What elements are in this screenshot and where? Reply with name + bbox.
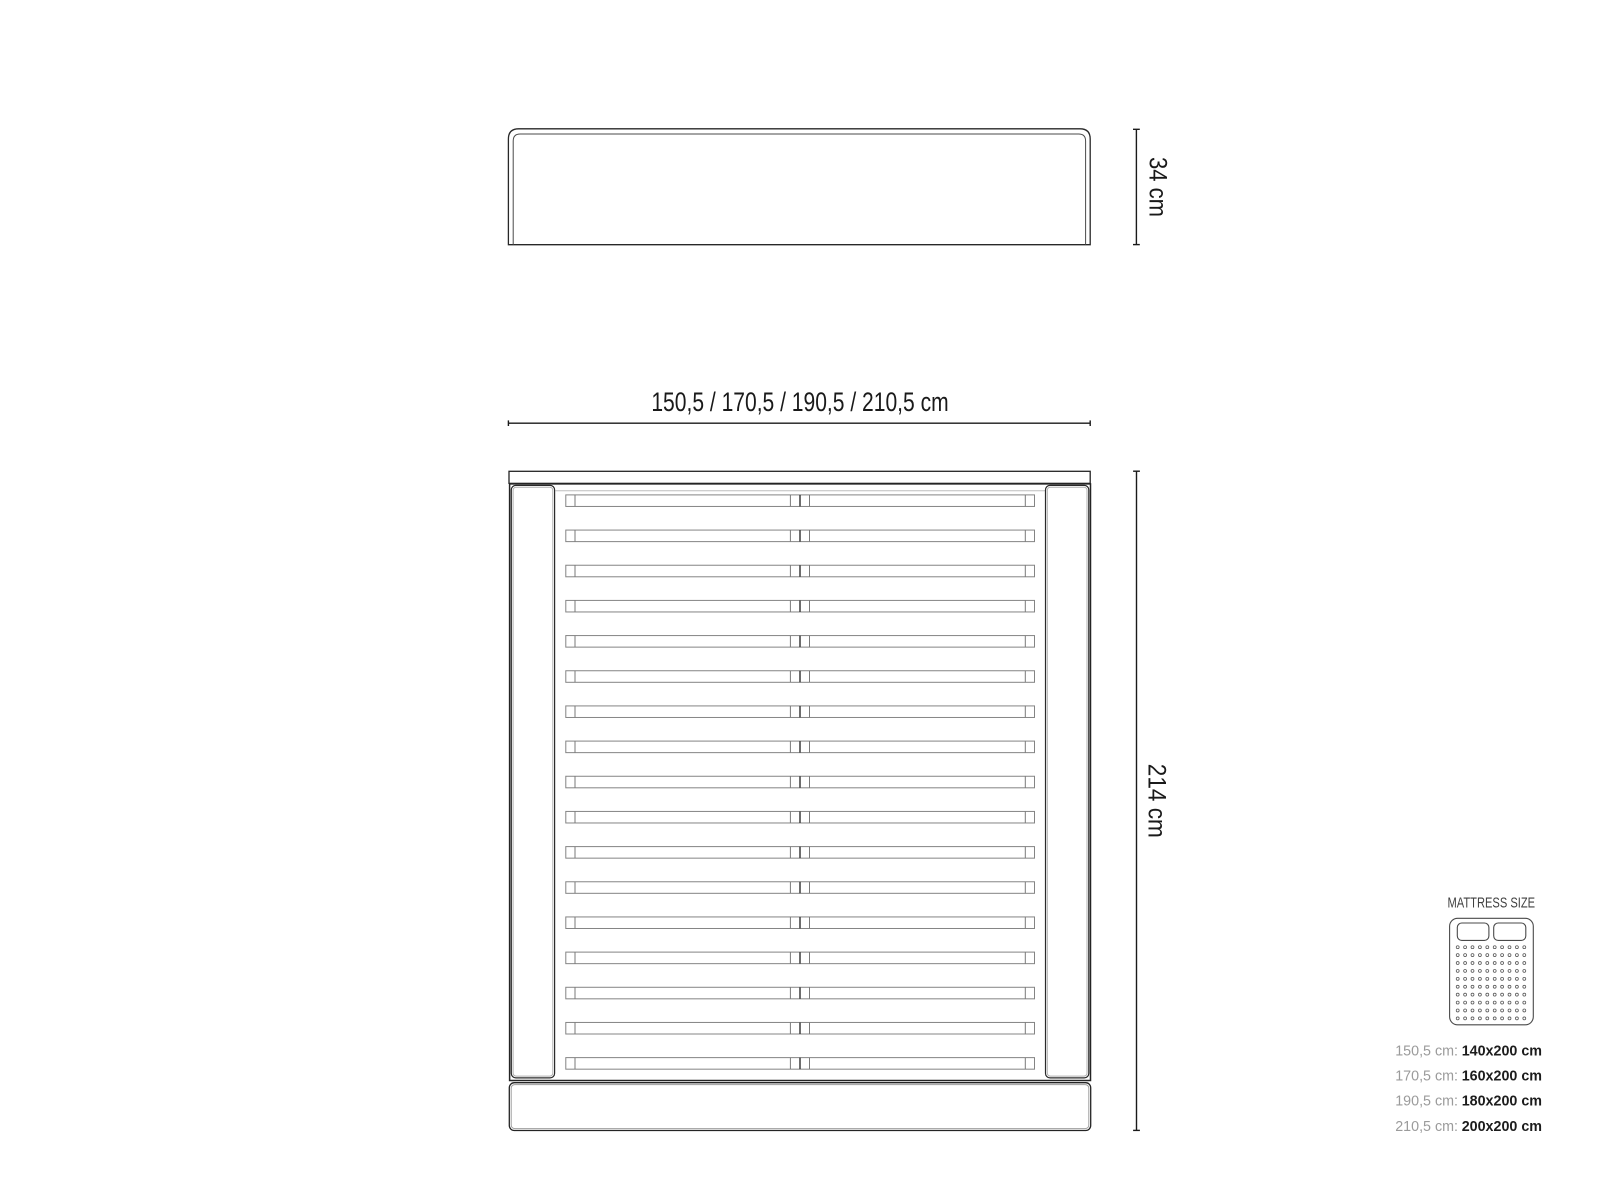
svg-text:160x200 cm: 160x200 cm — [1462, 1069, 1542, 1085]
svg-text:MATTRESS SIZE: MATTRESS SIZE — [1448, 895, 1536, 912]
svg-text:34 cm: 34 cm — [1144, 157, 1172, 217]
svg-text:180x200 cm: 180x200 cm — [1462, 1094, 1542, 1110]
svg-text:150,5 cm:: 150,5 cm: — [1395, 1044, 1458, 1060]
svg-text:200x200 cm: 200x200 cm — [1462, 1119, 1542, 1135]
svg-text:210,5 cm:: 210,5 cm: — [1395, 1119, 1458, 1135]
svg-text:150,5 / 170,5 / 190,5 / 210,5: 150,5 / 170,5 / 190,5 / 210,5 cm — [651, 387, 948, 417]
svg-text:214 cm: 214 cm — [1143, 764, 1171, 838]
svg-text:170,5 cm:: 170,5 cm: — [1395, 1069, 1458, 1085]
svg-text:190,5 cm:: 190,5 cm: — [1395, 1094, 1458, 1110]
svg-text:140x200 cm: 140x200 cm — [1462, 1044, 1542, 1060]
